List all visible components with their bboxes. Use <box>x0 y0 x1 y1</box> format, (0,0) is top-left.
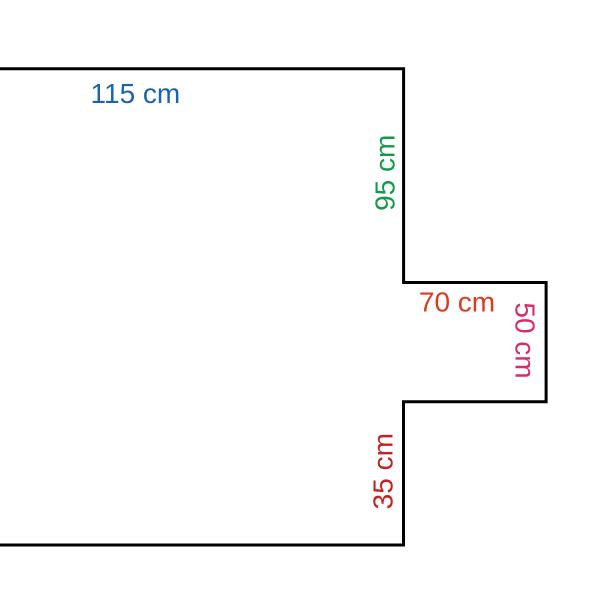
svg-text:70 cm: 70 cm <box>419 286 495 317</box>
svg-text:95 cm: 95 cm <box>369 135 400 211</box>
svg-text:35 cm: 35 cm <box>368 433 399 509</box>
svg-text:115 cm: 115 cm <box>91 78 181 109</box>
svg-text:50 cm: 50 cm <box>509 302 540 378</box>
